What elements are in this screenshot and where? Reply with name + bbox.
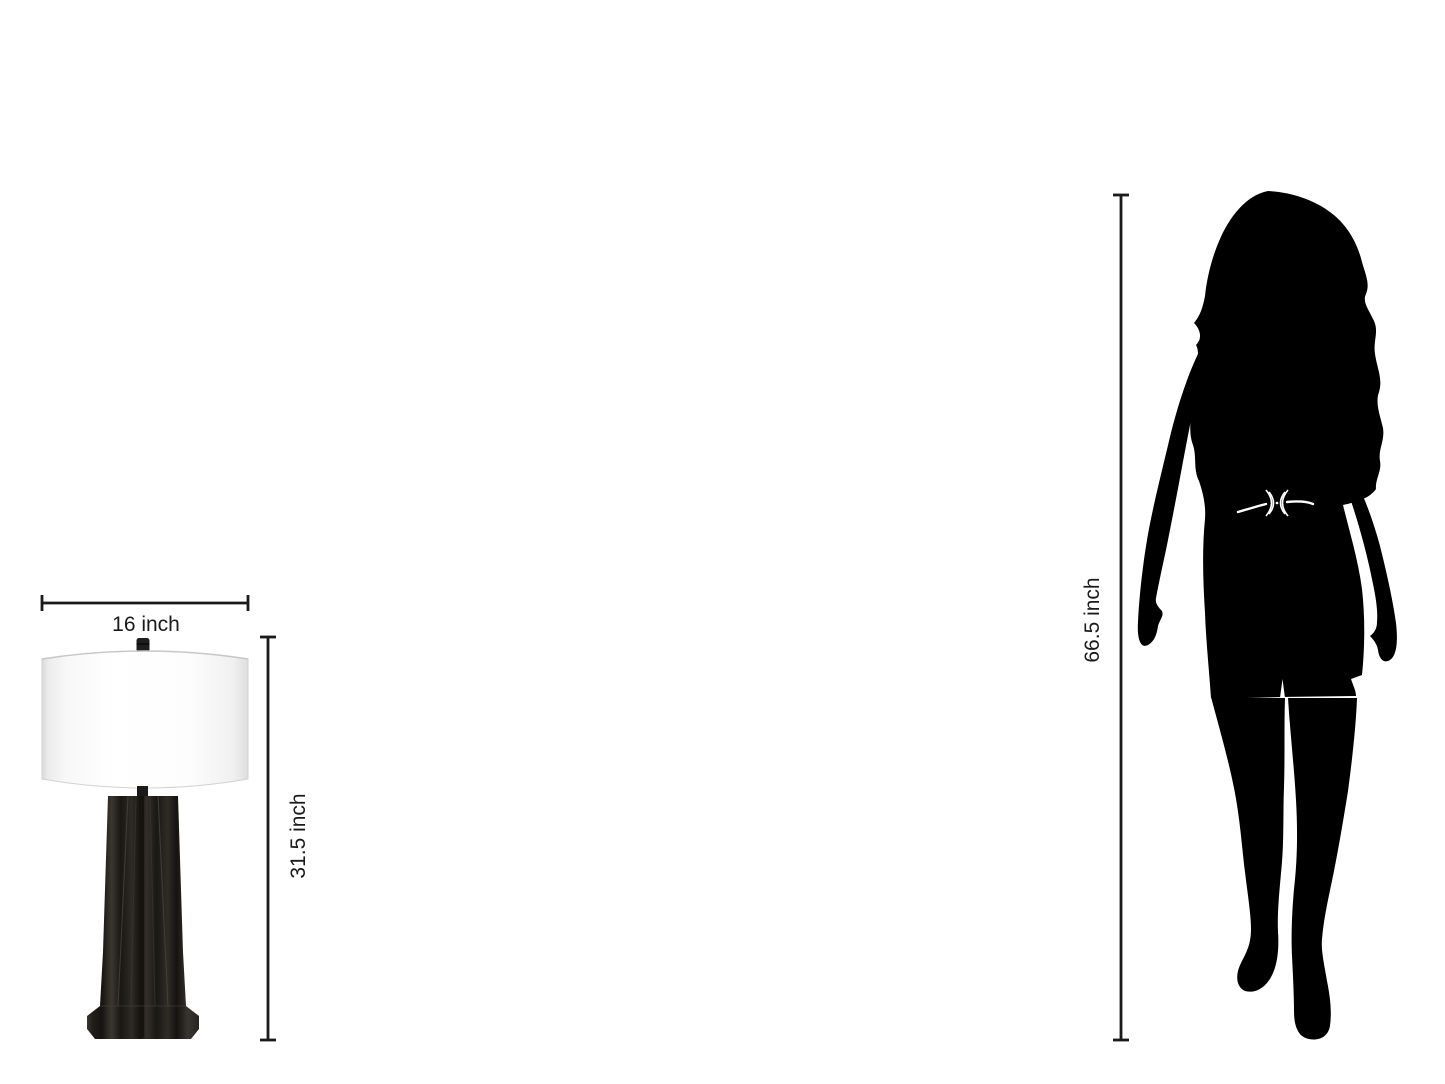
woman-left-arm [1138,352,1199,646]
lamp-shade [42,651,248,788]
woman-right-leg [1288,698,1357,1039]
lamp-width-label: 16 inch [112,613,180,636]
woman-left-leg [1211,697,1285,992]
lamp-height-dimension [260,637,276,1040]
woman-body [1188,191,1384,698]
lamp-height-label: 31.5 inch [287,793,310,878]
lamp-finial-ridge [137,643,150,645]
table-lamp [42,638,248,1039]
person-height-dimension [1113,195,1129,1040]
woman-silhouette [1138,191,1397,1039]
person-height-label: 66.5 inch [1081,577,1104,662]
product-dimension-diagram: 16 inch 31.5 inch 66.5 inch [0,0,1445,1084]
lamp-neck [137,786,148,797]
lamp-width-dimension [42,595,248,611]
diagram-svg: 16 inch 31.5 inch 66.5 inch [0,0,1445,1084]
